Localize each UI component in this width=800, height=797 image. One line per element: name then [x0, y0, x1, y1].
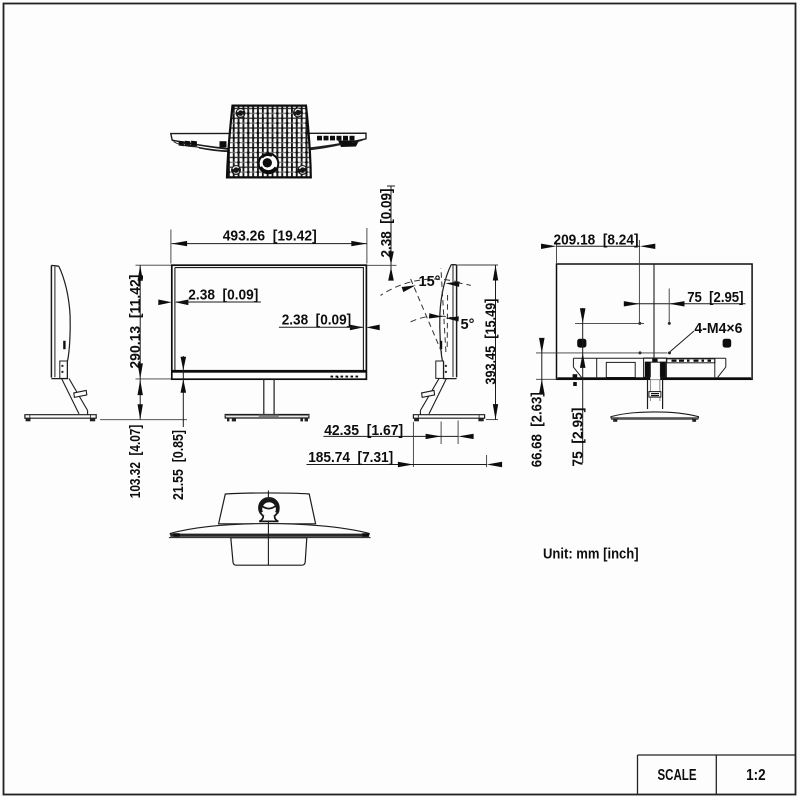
svg-text:2.38 [0.09]: 2.38 [0.09]	[188, 287, 258, 303]
svg-text:21.55 [0.85]: 21.55 [0.85]	[171, 430, 187, 500]
svg-text:103.32 [4.07]: 103.32 [4.07]	[128, 425, 144, 499]
svg-text:4-M4×6: 4-M4×6	[694, 321, 742, 337]
svg-text:290.13 [11.42]: 290.13 [11.42]	[128, 275, 144, 369]
svg-text:5°: 5°	[461, 317, 475, 333]
svg-text:75 [2.95]: 75 [2.95]	[571, 408, 587, 467]
svg-text:185.74 [7.31]: 185.74 [7.31]	[308, 450, 393, 466]
svg-text:393.45 [15.49]: 393.45 [15.49]	[483, 299, 499, 385]
svg-text:209.18 [8.24]: 209.18 [8.24]	[554, 233, 639, 249]
svg-text:2.38 [0.09]: 2.38 [0.09]	[379, 189, 395, 258]
svg-text:Unit: mm [inch]: Unit: mm [inch]	[543, 547, 639, 563]
svg-text:15°: 15°	[419, 274, 441, 290]
svg-text:66.68 [2.63]: 66.68 [2.63]	[529, 392, 545, 467]
svg-text:1:2: 1:2	[746, 767, 766, 784]
svg-text:42.35 [1.67]: 42.35 [1.67]	[324, 423, 403, 439]
svg-text:493.26 [19.42]: 493.26 [19.42]	[223, 229, 317, 245]
svg-text:2.38 [0.09]: 2.38 [0.09]	[282, 312, 352, 328]
svg-text:75 [2.95]: 75 [2.95]	[687, 290, 743, 306]
svg-text:SCALE: SCALE	[658, 767, 697, 784]
